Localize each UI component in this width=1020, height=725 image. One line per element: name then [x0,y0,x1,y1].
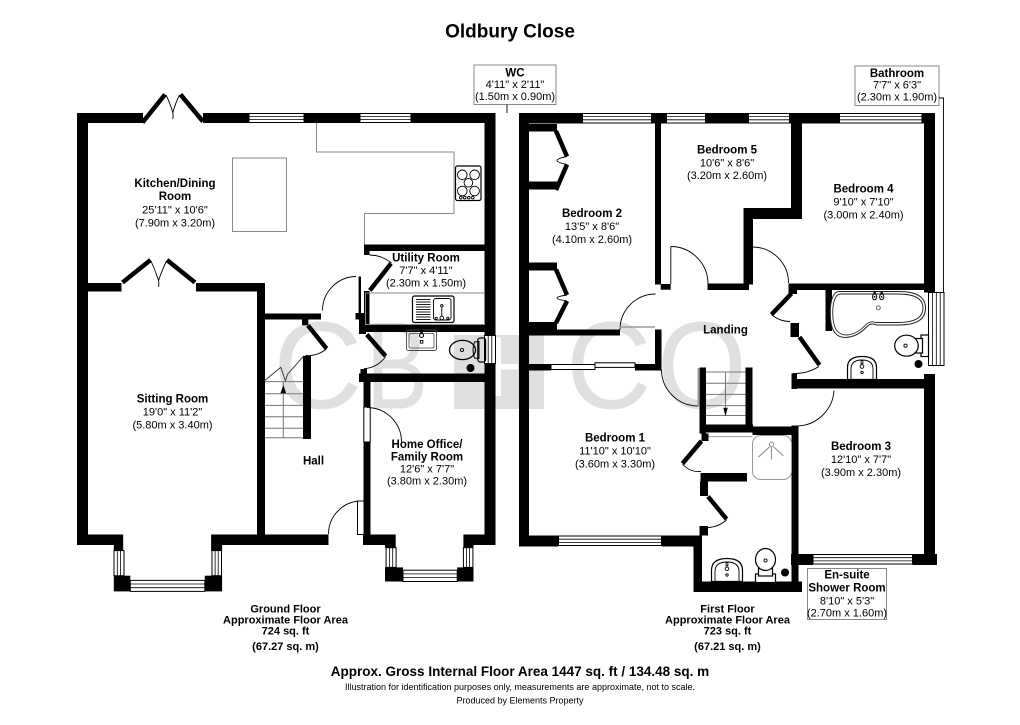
svg-text:(3.00m x 2.40m): (3.00m x 2.40m) [823,210,903,222]
svg-text:25'11" x 10'6": 25'11" x 10'6" [142,205,208,217]
svg-text:Kitchen/Dining: Kitchen/Dining [134,178,215,190]
svg-text:Bedroom 5: Bedroom 5 [697,145,758,157]
svg-text:Bedroom 1: Bedroom 1 [585,433,646,445]
svg-text:(7.90m x 3.20m): (7.90m x 3.20m) [135,218,215,230]
svg-text:Utility Room: Utility Room [392,253,460,265]
svg-text:WC: WC [505,68,524,80]
svg-text:Bedroom 3: Bedroom 3 [831,441,891,453]
svg-text:19'0" x 11'2": 19'0" x 11'2" [143,407,203,419]
svg-text:(2.70m x 1.60m): (2.70m x 1.60m) [807,608,887,620]
svg-text:(4.10m x 2.60m): (4.10m x 2.60m) [552,234,632,246]
svg-text:4'11" x 2'11": 4'11" x 2'11" [486,79,545,91]
svg-text:Hall: Hall [303,456,324,468]
svg-text:Bedroom 4: Bedroom 4 [833,184,894,196]
svg-text:Shower Room: Shower Room [808,583,885,595]
svg-text:(3.90m x 2.30m): (3.90m x 2.30m) [821,467,901,479]
svg-text:(67.21 sq. m): (67.21 sq. m) [694,641,761,653]
svg-text:(2.30m x 1.50m): (2.30m x 1.50m) [386,278,466,290]
svg-text:Home Office/: Home Office/ [392,439,464,451]
svg-text:(3.20m x 2.60m): (3.20m x 2.60m) [687,170,767,182]
svg-text:724 sq. ft: 724 sq. ft [262,626,310,638]
svg-text:Sitting Room: Sitting Room [137,394,209,406]
svg-text:Illustration for identificatio: Illustration for identification purposes… [345,682,695,692]
svg-text:Room: Room [159,191,192,203]
svg-text:(1.50m x 0.90m): (1.50m x 0.90m) [475,91,555,103]
svg-text:11'10" x 10'10": 11'10" x 10'10" [579,446,651,458]
svg-text:Family Room: Family Room [391,452,463,464]
svg-text:13'5" x 8'6": 13'5" x 8'6" [565,221,619,233]
svg-text:7'7" x 6'3": 7'7" x 6'3" [873,80,921,92]
svg-text:7'7" x 4'11": 7'7" x 4'11" [399,265,452,277]
svg-text:Approx. Gross Internal Floor A: Approx. Gross Internal Floor Area 1447 s… [331,664,709,679]
svg-text:12'10" x 7'7": 12'10" x 7'7" [831,454,891,466]
svg-text:10'6" x 8'6": 10'6" x 8'6" [700,158,754,170]
svg-text:723 sq. ft: 723 sq. ft [704,626,752,638]
svg-text:Bathroom: Bathroom [870,68,924,80]
svg-text:(67.27 sq. m): (67.27 sq. m) [252,641,319,653]
svg-text:En-suite: En-suite [824,570,869,582]
svg-text:Landing: Landing [703,325,748,337]
svg-text:(2.30m x 1.90m): (2.30m x 1.90m) [857,92,937,104]
svg-text:Bedroom 2: Bedroom 2 [562,208,622,220]
svg-text:(3.80m x 2.30m): (3.80m x 2.30m) [387,476,467,488]
svg-text:12'6" x 7'7": 12'6" x 7'7" [400,464,454,476]
svg-text:Produced by Elements Property: Produced by Elements Property [456,696,584,706]
svg-text:(3.60m x 3.30m): (3.60m x 3.30m) [575,459,655,471]
svg-text:Oldbury Close: Oldbury Close [445,22,575,43]
svg-text:8'10" x 5'3": 8'10" x 5'3" [820,596,874,608]
svg-text:9'10" x 7'10": 9'10" x 7'10" [833,197,893,209]
svg-text:(5.80m x 3.40m): (5.80m x 3.40m) [132,420,212,432]
